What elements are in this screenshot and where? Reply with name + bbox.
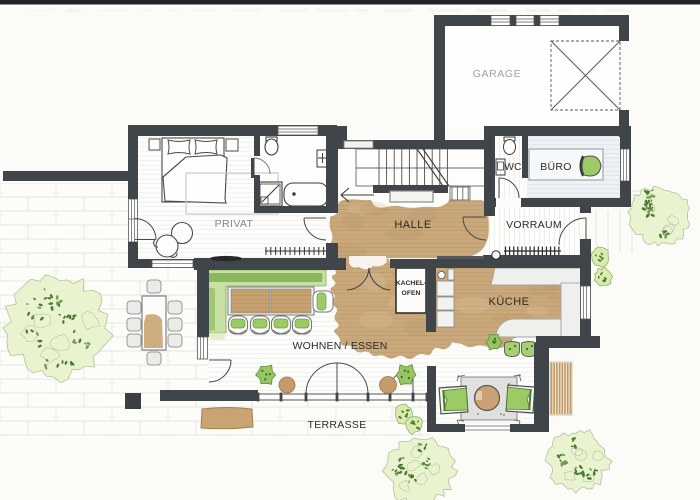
svg-text:WOHNEN / ESSEN: WOHNEN / ESSEN [293, 340, 388, 352]
svg-text:KÜCHE: KÜCHE [488, 296, 529, 308]
svg-text:OFEN: OFEN [402, 290, 421, 297]
svg-text:HALLE: HALLE [394, 219, 431, 231]
svg-text:GARAGE: GARAGE [473, 68, 522, 80]
svg-text:KACHEL-: KACHEL- [396, 280, 427, 287]
svg-text:TERRASSE: TERRASSE [308, 419, 367, 431]
svg-text:VORRAUM: VORRAUM [506, 219, 562, 231]
svg-text:WC: WC [504, 162, 521, 173]
svg-text:BÜRO: BÜRO [540, 161, 572, 173]
svg-text:PRIVAT: PRIVAT [215, 218, 254, 230]
